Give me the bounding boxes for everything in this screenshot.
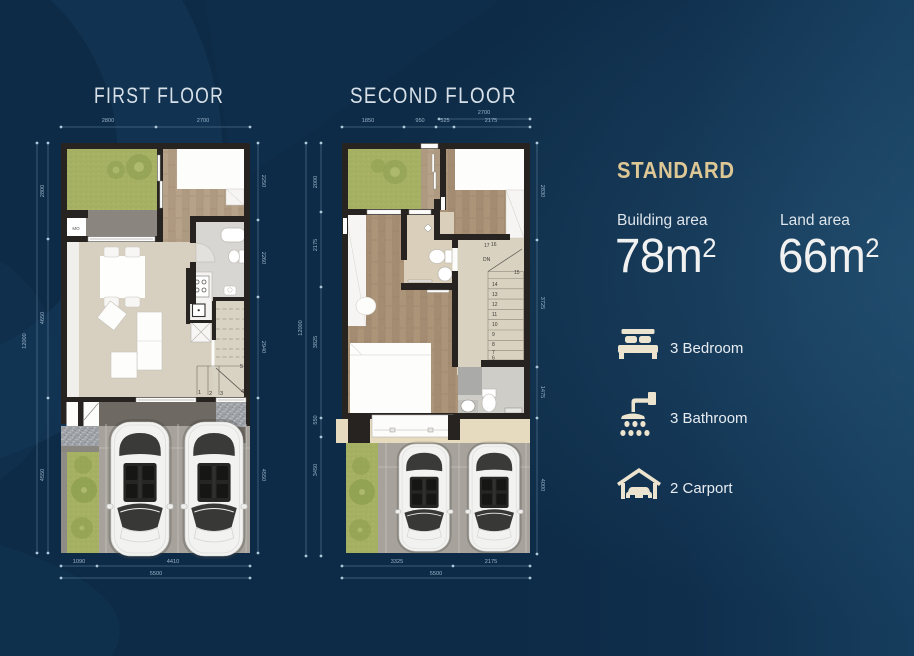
svg-text:8: 8 [492,342,495,348]
svg-text:2: 2 [209,391,212,397]
svg-text:5: 5 [240,364,243,370]
svg-text:3450: 3450 [313,464,319,476]
svg-text:4550: 4550 [260,469,266,481]
svg-text:525: 525 [440,118,449,124]
svg-text:3825: 3825 [313,336,319,348]
svg-text:1090: 1090 [73,559,85,565]
svg-text:9: 9 [492,332,495,338]
svg-text:2260: 2260 [260,252,266,264]
svg-text:1475: 1475 [539,386,545,398]
svg-text:11: 11 [492,312,497,318]
svg-text:17: 17 [484,243,490,249]
svg-text:1850: 1850 [362,118,374,124]
svg-text:4: 4 [241,389,244,395]
svg-text:2000: 2000 [313,176,319,188]
svg-text:2700: 2700 [197,118,209,124]
svg-text:2175: 2175 [485,559,497,565]
svg-text:4550: 4550 [40,469,46,481]
svg-text:4410: 4410 [167,559,179,565]
svg-text:5500: 5500 [430,571,442,577]
svg-text:3: 3 [220,391,223,397]
svg-text:4000: 4000 [539,479,545,491]
svg-text:1: 1 [198,390,201,396]
svg-text:10: 10 [492,322,498,328]
svg-text:15: 15 [514,270,520,276]
svg-text:2830: 2830 [539,185,545,197]
svg-text:12000: 12000 [22,333,28,349]
svg-text:3725: 3725 [539,297,545,309]
svg-text:2175: 2175 [313,239,319,251]
svg-text:4650: 4650 [40,312,46,324]
svg-text:12: 12 [492,302,498,308]
svg-text:950: 950 [415,118,424,124]
svg-text:12000: 12000 [298,320,304,336]
svg-text:16: 16 [491,242,497,248]
svg-text:DN: DN [483,257,491,263]
svg-text:14: 14 [492,282,498,288]
svg-text:13: 13 [492,292,498,298]
svg-text:2700: 2700 [478,110,490,116]
svg-text:550: 550 [313,415,319,424]
svg-text:3325: 3325 [391,559,403,565]
svg-text:2250: 2250 [260,175,266,187]
svg-text:5500: 5500 [150,571,162,577]
svg-text:2800: 2800 [102,118,114,124]
svg-text:2175: 2175 [485,118,497,124]
svg-text:2800: 2800 [40,185,46,197]
svg-text:2940: 2940 [260,341,266,353]
svg-text:MO: MO [72,226,80,231]
